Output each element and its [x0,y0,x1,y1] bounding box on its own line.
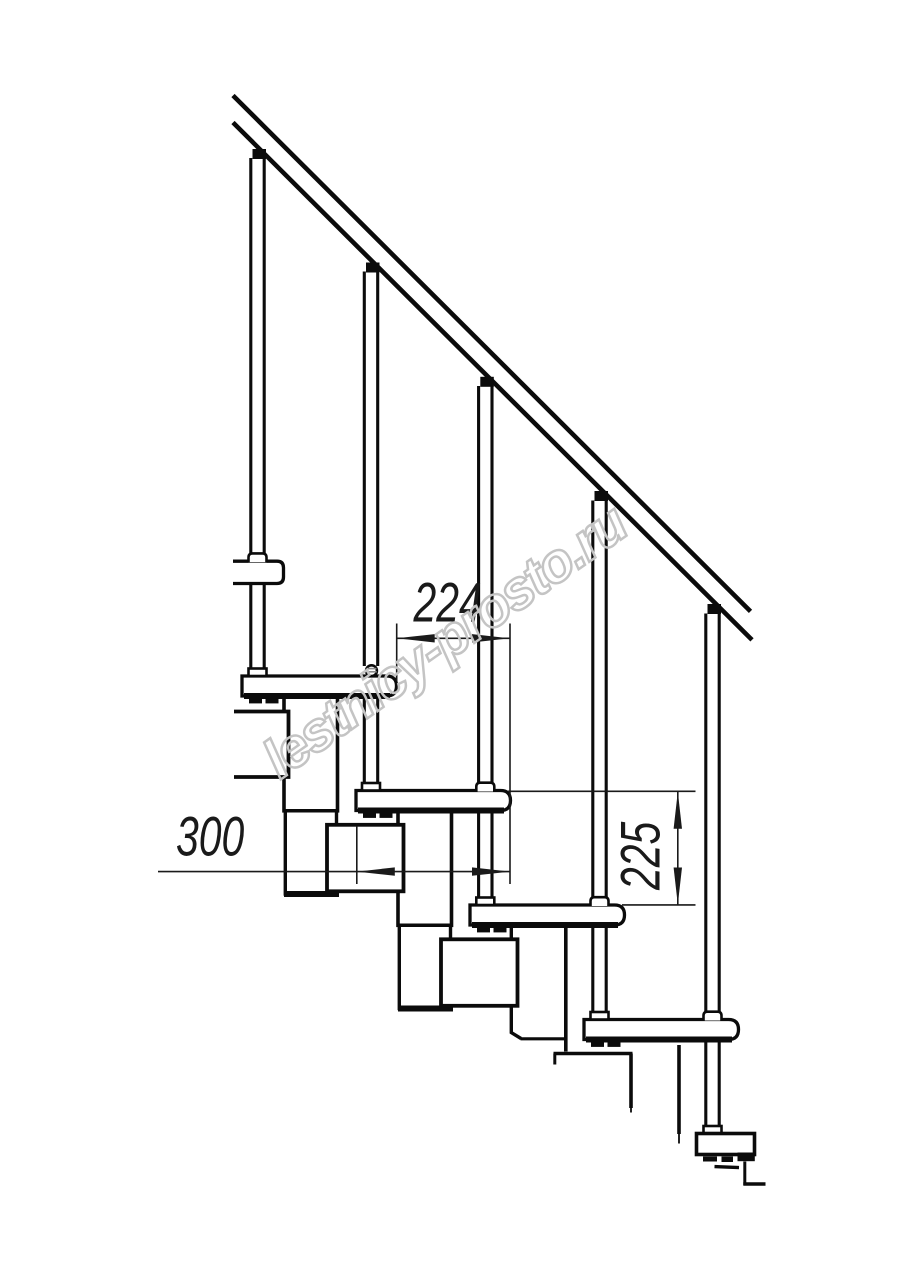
svg-text:225: 225 [610,821,672,891]
svg-text:300: 300 [176,806,244,868]
